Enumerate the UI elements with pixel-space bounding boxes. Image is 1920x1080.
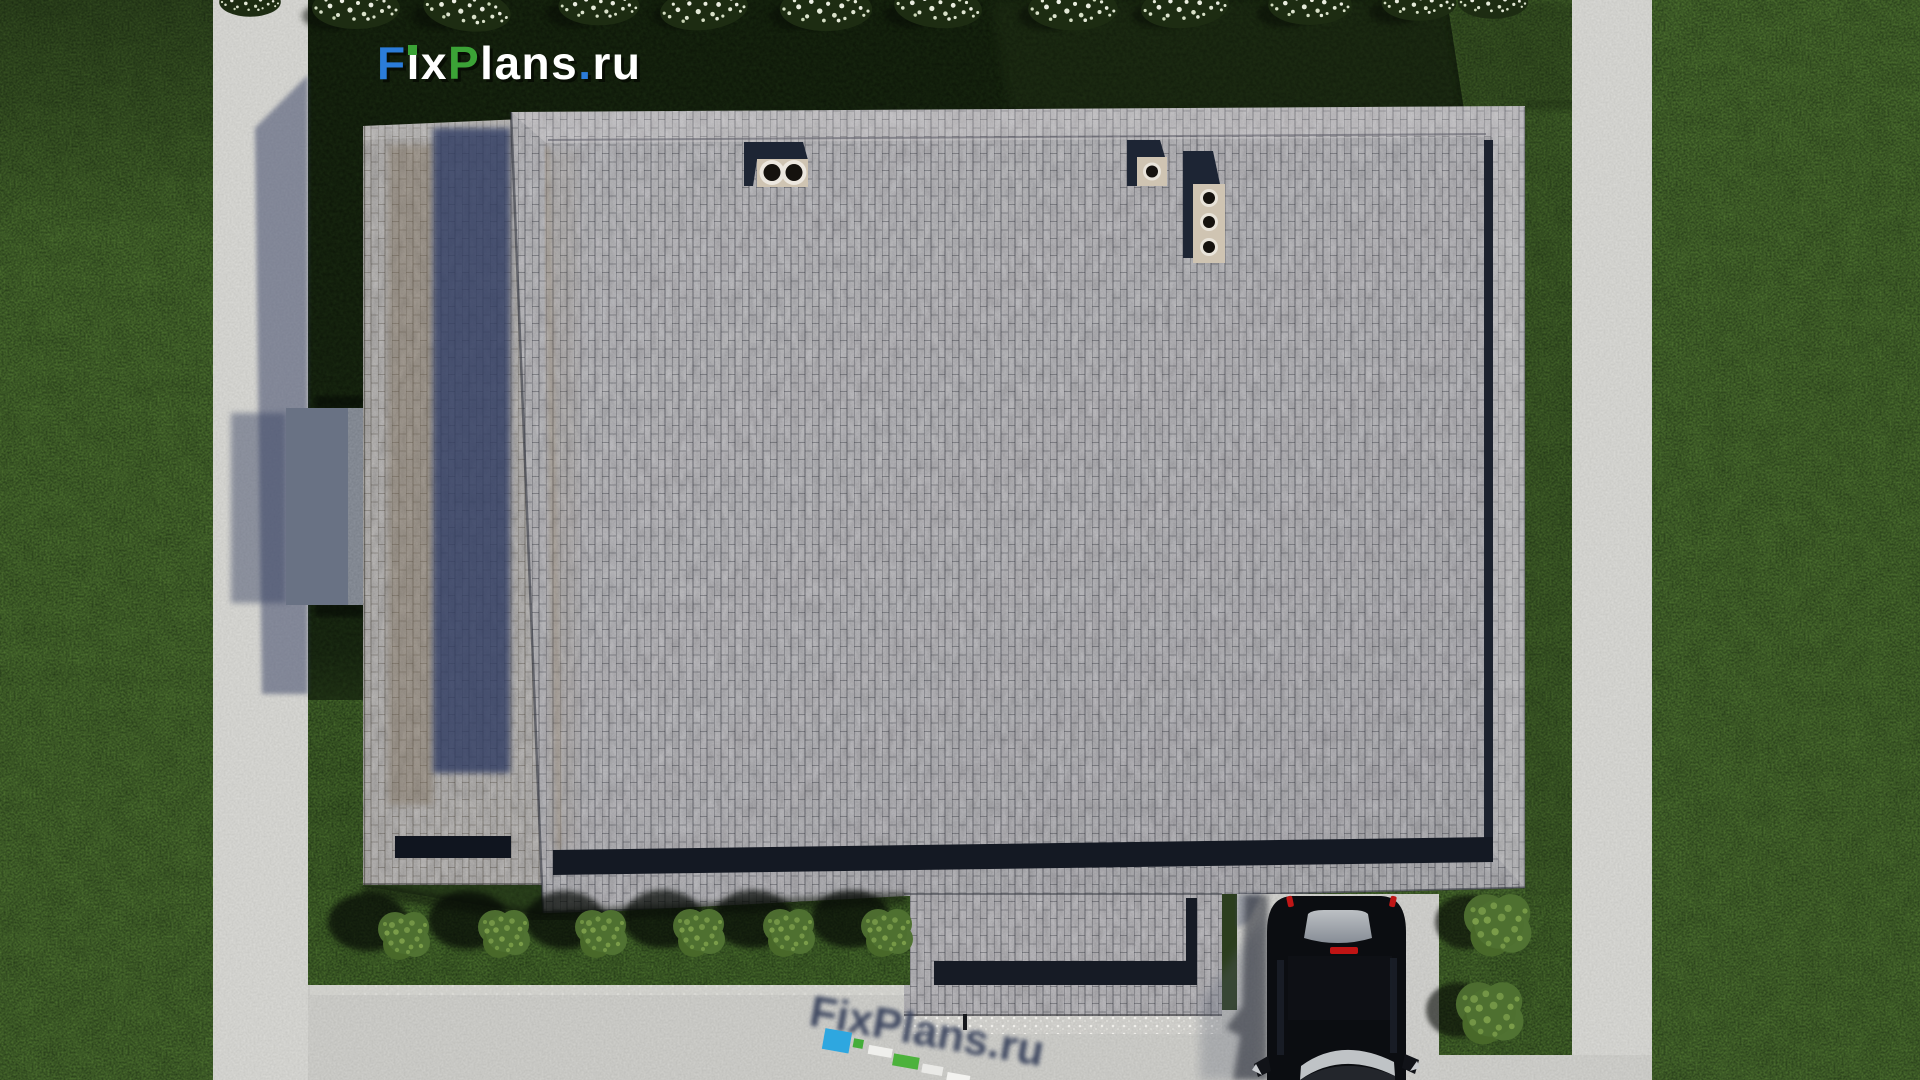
- svg-text:FixPlans.ru: FixPlans.ru: [377, 37, 642, 89]
